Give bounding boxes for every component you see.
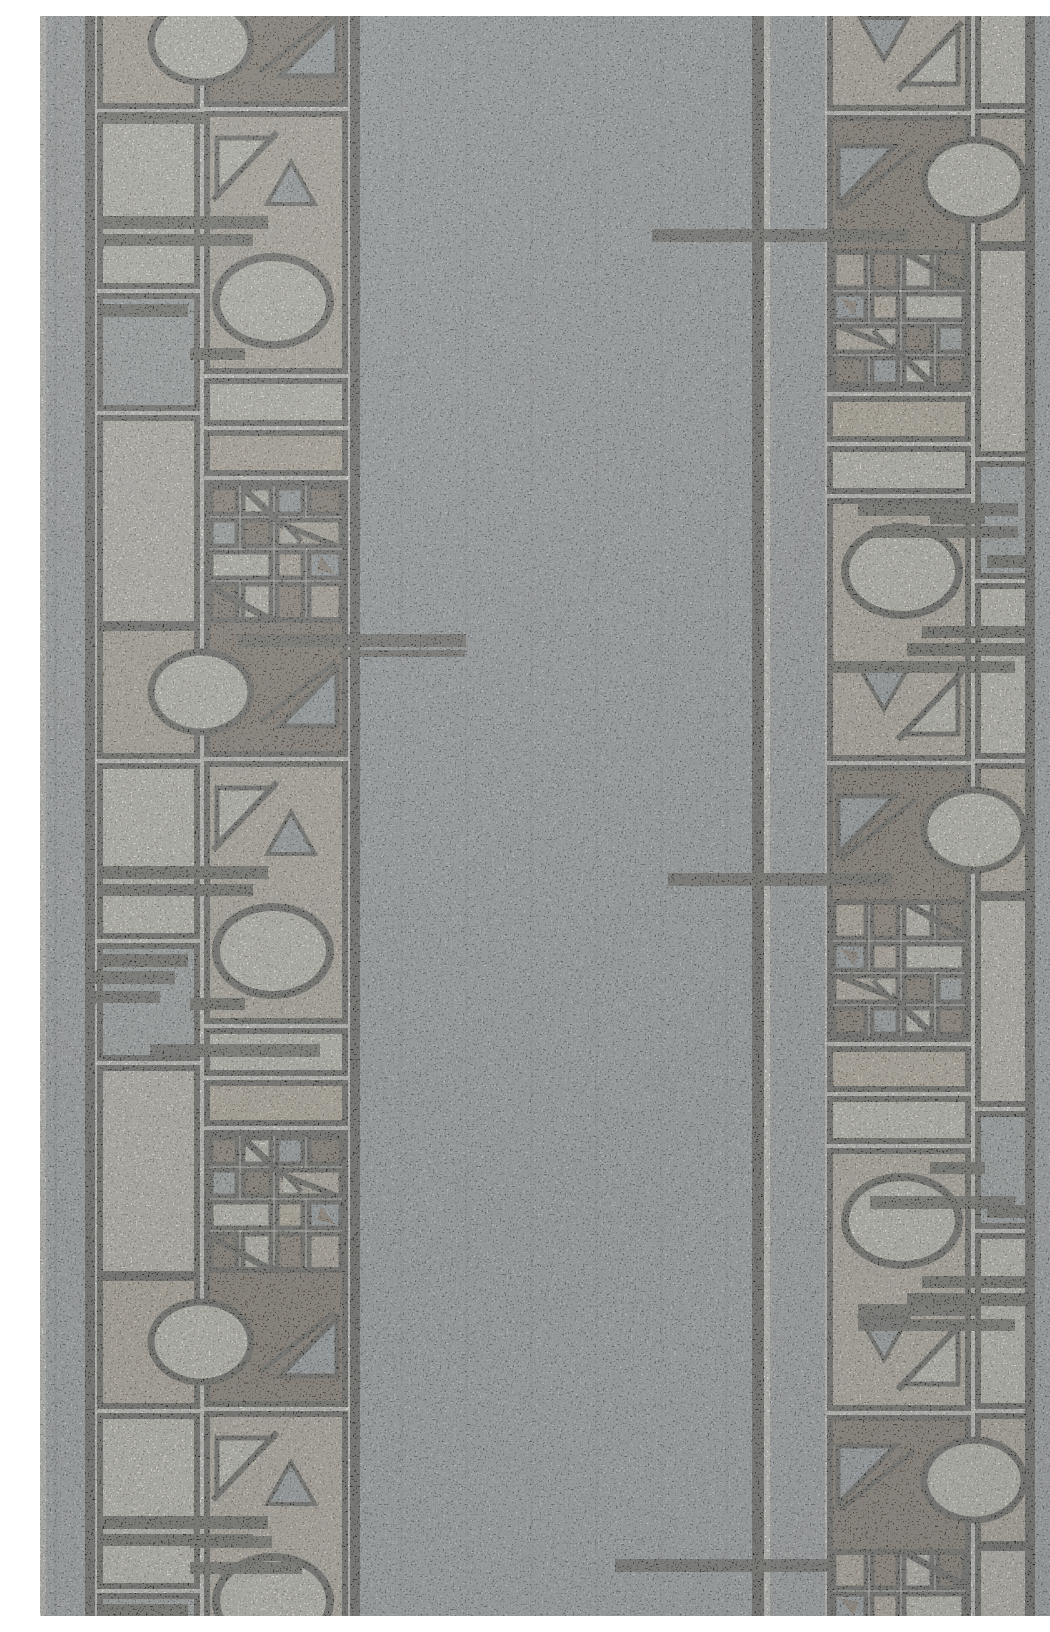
rug-image [40,16,1050,1616]
rug-photo [40,16,1050,1616]
speckle-overlay [40,16,1050,1616]
